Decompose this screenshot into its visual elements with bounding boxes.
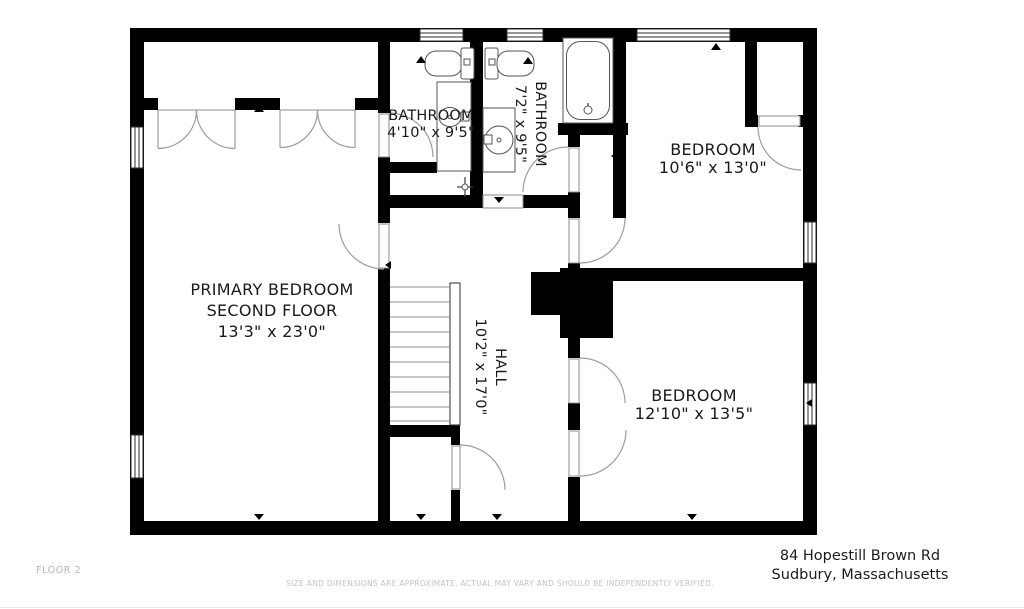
door [339, 224, 389, 269]
floor-plan-canvas: PRIMARY BEDROOM SECOND FLOOR 13'3" x 23'… [0, 0, 1024, 609]
floor-number-label: FLOOR 2 [36, 565, 81, 576]
wall [378, 162, 437, 173]
wall [745, 42, 757, 120]
toilet [425, 48, 474, 79]
wall [568, 338, 580, 358]
window [637, 29, 730, 41]
cased-opening [483, 195, 523, 208]
primary-bedroom-name-line1: PRIMARY BEDROOM [190, 280, 353, 299]
wall [613, 135, 626, 218]
window [804, 222, 816, 263]
room-label-bedroom-top: BEDROOM 10'6" x 13'0" [659, 140, 767, 177]
door [569, 430, 626, 476]
hall-name: HALL [492, 348, 508, 386]
wall [613, 28, 626, 135]
window [131, 435, 143, 478]
wall [803, 28, 817, 535]
door [452, 445, 505, 490]
footer: FLOOR 2 SIZE AND DIMENSIONS ARE APPROXIM… [0, 548, 1024, 608]
wall [378, 195, 483, 208]
wall [568, 135, 580, 147]
window [131, 127, 143, 168]
door [523, 147, 579, 192]
wall [568, 477, 580, 521]
address-line2: Sudbury, Massachusetts [772, 567, 949, 583]
bathtub [563, 38, 613, 123]
address-line1: 84 Hopestill Brown Rd [780, 548, 940, 564]
bedroom-top-name: BEDROOM [670, 140, 756, 159]
wall [144, 98, 158, 110]
primary-bedroom-dims: 13'3" x 23'0" [218, 322, 326, 341]
wall [568, 403, 580, 430]
door [569, 218, 625, 263]
room-label-bedroom-bottom: BEDROOM 12'10" x 13'5" [635, 386, 754, 423]
bathroom-large-dims: 7'2" x 9'5" [512, 85, 528, 163]
door [569, 358, 625, 403]
wall [378, 425, 460, 437]
bedroom-bottom-dims: 12'10" x 13'5" [635, 404, 754, 423]
double-door [280, 110, 355, 148]
stairs [390, 283, 460, 425]
double-door [158, 110, 235, 149]
disclaimer-text: SIZE AND DIMENSIONS ARE APPROXIMATE, ACT… [286, 579, 714, 588]
room-label-bathroom-large: BATHROOM 7'2" x 9'5" [512, 81, 548, 167]
wall [558, 123, 628, 135]
wall [451, 490, 460, 521]
window [507, 29, 543, 41]
wall [568, 192, 580, 218]
room-label-bathroom-small: BATHROOM 4'10" x 9'5" [387, 108, 475, 141]
wall [745, 115, 758, 127]
bathroom-small-name: BATHROOM [388, 108, 474, 124]
room-label-primary-bedroom: PRIMARY BEDROOM SECOND FLOOR 13'3" x 23'… [190, 280, 353, 341]
floor-plan-page: PRIMARY BEDROOM SECOND FLOOR 13'3" x 23'… [0, 0, 1024, 609]
round-sink [483, 108, 515, 172]
wall [378, 268, 390, 521]
wall [451, 437, 460, 445]
bathroom-large-name: BATHROOM [532, 81, 548, 167]
primary-bedroom-name-line2: SECOND FLOOR [207, 301, 338, 320]
window [420, 29, 463, 41]
bedroom-bottom-name: BEDROOM [651, 386, 737, 405]
bathroom-small-dims: 4'10" x 9'5" [387, 125, 475, 141]
wall [130, 521, 817, 535]
hall-dims: 10'2" x 17'0" [472, 318, 488, 415]
chimney [531, 272, 613, 338]
wall [378, 28, 390, 113]
room-label-hall: HALL 10'2" x 17'0" [472, 318, 508, 415]
bedroom-top-dims: 10'6" x 13'0" [659, 158, 767, 177]
